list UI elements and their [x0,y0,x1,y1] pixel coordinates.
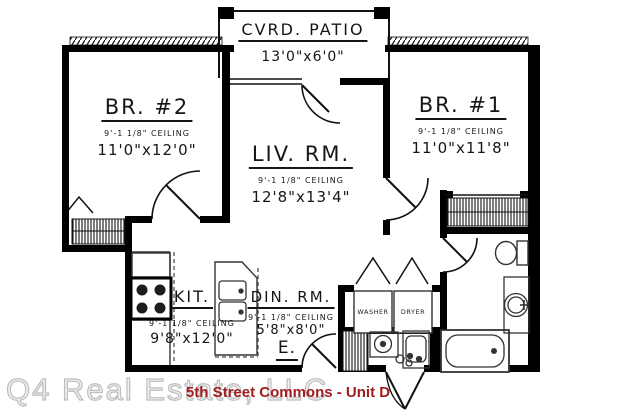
kitchen-name: KIT. [171,287,213,309]
entry-label: E. [276,338,298,361]
living-name: LIV. RM. [249,142,353,169]
living-ceiling: 9'-1 1/8" CEILING [249,176,353,185]
floor-plan: CVRD. PATIO 13'0"x6'0" BR. #2 9'-1 1/8" … [0,0,621,414]
bedroom2-dims: 11'0"x12'0" [97,141,196,159]
bedroom1-ceiling: 9'-1 1/8" CEILING [411,127,510,136]
bedroom1-dims: 11'0"x11'8" [411,139,510,157]
plan-title: 5th Street Commons - Unit D [186,384,390,401]
bedroom2-name: BR. #2 [102,95,193,122]
room-label-patio: CVRD. PATIO 13'0"x6'0" [238,20,367,65]
bedroom1-name: BR. #1 [416,93,507,120]
patio-window-band [230,79,302,84]
dining-dims: 5'8"x8'0" [248,323,335,338]
patio-dims: 13'0"x6'0" [238,49,367,65]
room-label-kitchen: KIT. 9'-1 1/8" CEILING 9'8"x12'0" [149,287,235,347]
room-label-dining: DIN. RM. 9'-1 1/8" CEILING 5'8"x8'0" [248,287,335,338]
kitchen-ceiling: 9'-1 1/8" CEILING [149,319,235,328]
toilet [496,241,529,265]
bathtub [441,330,509,372]
room-label-bedroom1: BR. #1 9'-1 1/8" CEILING 11'0"x11'8" [411,93,510,157]
bifold-doors [356,258,428,284]
patio-name: CVRD. PATIO [238,20,367,42]
washer-label: WASHER [354,291,392,333]
dining-name: DIN. RM. [248,288,335,309]
dryer-label: DRYER [394,291,432,333]
vanity-sink-lower [403,331,429,368]
bedroom2-ceiling: 9'-1 1/8" CEILING [97,129,196,138]
patio-posts [218,7,390,19]
living-dims: 12'8"x13'4" [249,188,353,206]
kitchen-dims: 9'8"x12'0" [149,331,235,347]
dining-ceiling: 9'-1 1/8" CEILING [248,313,335,322]
room-label-living: LIV. RM. 9'-1 1/8" CEILING 12'8"x13'4" [249,142,353,206]
room-label-bedroom2: BR. #2 9'-1 1/8" CEILING 11'0"x12'0" [97,95,196,159]
bathroom-sink [504,277,529,333]
